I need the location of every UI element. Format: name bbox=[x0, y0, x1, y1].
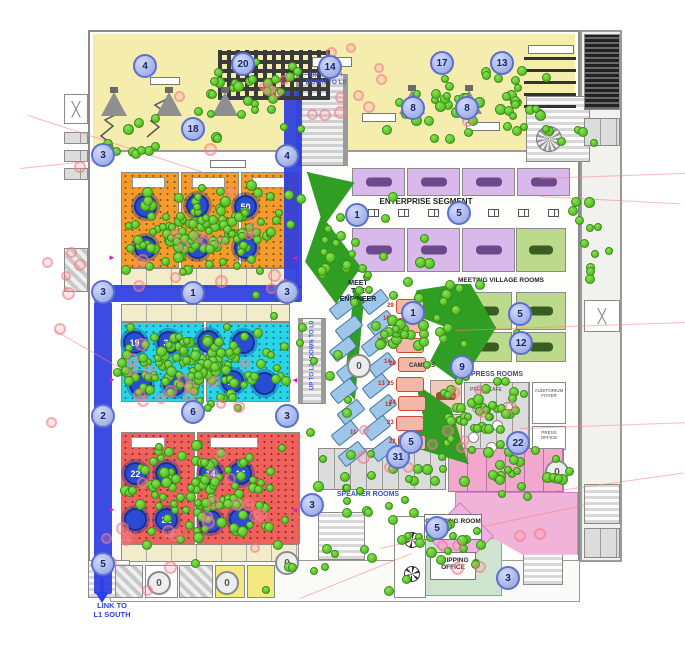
attendee-dot-green bbox=[445, 82, 454, 91]
attendee-dot-green bbox=[511, 100, 520, 109]
attendee-dot-pink bbox=[363, 101, 375, 113]
attendee-dot-green bbox=[270, 312, 278, 320]
cone-structure-cap bbox=[110, 87, 118, 93]
attendee-dot-green bbox=[182, 506, 190, 514]
numbered-desk-pod bbox=[396, 416, 424, 431]
attendee-dot-green bbox=[271, 374, 281, 384]
attendee-dot-green bbox=[336, 213, 345, 222]
cone-structure-cap bbox=[465, 85, 473, 91]
attendee-dot-green bbox=[150, 333, 159, 342]
attendee-dot-green bbox=[313, 481, 324, 492]
attendee-dot-green bbox=[438, 453, 446, 461]
attendee-dot-pink bbox=[204, 143, 217, 156]
attendee-dot-green bbox=[200, 458, 209, 467]
attendee-dot-green bbox=[233, 81, 244, 92]
attendee-dot-pink bbox=[207, 468, 218, 479]
attendee-dot-green bbox=[400, 330, 409, 339]
attendee-dot-green bbox=[198, 184, 206, 192]
attendee-dot-green bbox=[248, 75, 257, 84]
small-label-box bbox=[528, 45, 574, 54]
attendee-dot-green bbox=[281, 376, 291, 386]
attendee-dot-pink bbox=[126, 364, 138, 376]
attendee-dot-green bbox=[351, 238, 360, 247]
attendee-dot-green bbox=[367, 471, 376, 480]
attendee-dot-green bbox=[208, 90, 217, 99]
attendee-dot-green bbox=[310, 357, 318, 365]
room-purple bbox=[352, 168, 405, 196]
attendee-dot-green bbox=[296, 339, 304, 347]
waypoint-marker[interactable]: 4 bbox=[275, 144, 299, 168]
attendee-dot-green bbox=[367, 553, 377, 563]
attendee-dot-green bbox=[554, 474, 563, 483]
attendee-dot-green bbox=[342, 408, 352, 418]
attendee-dot-green bbox=[419, 337, 429, 347]
attendee-dot-green bbox=[511, 76, 520, 85]
desk-number: 13 bbox=[378, 381, 385, 387]
attendee-dot-green bbox=[288, 563, 297, 572]
attendee-dot-green bbox=[445, 280, 455, 290]
attendee-dot-pink bbox=[240, 359, 250, 369]
attendee-dot-green bbox=[422, 464, 433, 475]
attendee-dot-green bbox=[346, 450, 356, 460]
attendee-dot-green bbox=[159, 223, 167, 231]
attendee-dot-green bbox=[424, 116, 434, 126]
attendee-dot-pink bbox=[177, 239, 189, 251]
attendee-dot-green bbox=[389, 291, 398, 300]
attendee-dot-pink bbox=[225, 473, 236, 484]
entrance-arrow-icon: ► bbox=[108, 506, 116, 514]
attendee-dot-green bbox=[229, 341, 238, 350]
attendee-dot-green bbox=[236, 471, 246, 481]
attendee-dot-green bbox=[360, 545, 369, 554]
attendee-dot-green bbox=[319, 455, 327, 463]
zero-marker[interactable]: 0 bbox=[347, 354, 371, 378]
attendee-dot-pink bbox=[477, 408, 487, 418]
attendee-dot-green bbox=[433, 314, 441, 322]
attendee-dot-pink bbox=[357, 451, 370, 464]
attendee-dot-green bbox=[517, 482, 526, 491]
waypoint-marker[interactable]: 5 bbox=[508, 302, 532, 326]
attendee-dot-green bbox=[356, 487, 364, 495]
attendee-dot-green bbox=[381, 214, 390, 223]
attendee-dot-green bbox=[183, 337, 191, 345]
attendee-dot-green bbox=[191, 559, 200, 568]
zero-marker[interactable]: 0 bbox=[215, 571, 239, 595]
waypoint-marker[interactable]: 18 bbox=[181, 117, 205, 141]
attendee-dot-pink bbox=[505, 401, 517, 413]
attendee-dot-pink bbox=[353, 90, 364, 101]
attendee-dot-green bbox=[216, 517, 227, 528]
attendee-dot-pink bbox=[271, 87, 282, 98]
attendee-dot-pink bbox=[474, 561, 486, 573]
attendee-dot-green bbox=[240, 332, 249, 341]
attendee-dot-pink bbox=[374, 63, 384, 73]
attendee-dot-green bbox=[237, 110, 246, 119]
waypoint-marker[interactable]: 5 bbox=[91, 552, 115, 576]
attendee-dot-green bbox=[155, 502, 163, 510]
attendee-dot-green bbox=[496, 440, 505, 449]
attendee-dot-green bbox=[147, 527, 156, 536]
attendee-dot-green bbox=[246, 180, 257, 191]
meeting-village-label: MEETING VILLAGE ROOMS bbox=[458, 277, 544, 284]
waypoint-marker[interactable]: 6 bbox=[181, 400, 205, 424]
attendee-dot-green bbox=[430, 476, 440, 486]
attendee-dot-green bbox=[532, 105, 540, 113]
waypoint-marker[interactable]: 8 bbox=[455, 96, 479, 120]
attendee-dot-green bbox=[214, 68, 223, 77]
attendee-dot-green bbox=[194, 371, 203, 380]
attendee-dot-pink bbox=[335, 92, 346, 103]
attendee-dot-green bbox=[177, 451, 187, 461]
attendee-dot-green bbox=[254, 485, 263, 494]
small-label-box bbox=[150, 77, 180, 85]
attendee-dot-pink bbox=[534, 528, 546, 540]
attendee-dot-green bbox=[513, 467, 521, 475]
attendee-dot-pink bbox=[231, 498, 244, 511]
entrance-arrow-icon: ► bbox=[108, 254, 116, 262]
attendee-dot-green bbox=[151, 479, 161, 489]
attendee-dot-green bbox=[172, 353, 181, 362]
attendee-dot-green bbox=[348, 250, 356, 258]
attendee-dot-pink bbox=[61, 271, 71, 281]
attendee-dot-green bbox=[247, 255, 256, 264]
attendee-dot-green bbox=[460, 340, 468, 348]
waypoint-marker[interactable]: 22 bbox=[506, 431, 530, 455]
attendee-dot-pink bbox=[164, 385, 177, 398]
attendee-dot-green bbox=[227, 217, 237, 227]
attendee-dot-green bbox=[229, 523, 239, 533]
attendee-dot-green bbox=[210, 77, 219, 86]
attendee-dot-green bbox=[266, 484, 274, 492]
attendee-dot-green bbox=[380, 330, 389, 339]
attendee-dot-green bbox=[385, 502, 393, 510]
attendee-dot-green bbox=[494, 74, 503, 83]
attendee-dot-green bbox=[321, 563, 329, 571]
entrance-arrow-icon: ► bbox=[108, 376, 116, 384]
attendee-dot-green bbox=[298, 323, 307, 332]
attendee-dot-green bbox=[266, 227, 276, 237]
attendee-dot-green bbox=[219, 258, 227, 266]
attendee-dot-green bbox=[188, 219, 198, 229]
attendee-dot-green bbox=[210, 362, 220, 372]
attendee-dot-green bbox=[220, 196, 231, 207]
attendee-dot-green bbox=[163, 514, 172, 523]
waypoint-marker[interactable]: 3 bbox=[275, 404, 299, 428]
attendee-dot-green bbox=[364, 508, 373, 517]
attendee-dot-pink bbox=[62, 287, 75, 300]
attendee-dot-green bbox=[517, 66, 527, 76]
attendee-dot-pink bbox=[174, 91, 185, 102]
attendee-dot-pink bbox=[474, 385, 484, 395]
waypoint-marker[interactable]: 3 bbox=[91, 143, 115, 167]
attendee-dot-green bbox=[552, 455, 560, 463]
room-xroom: ╳ bbox=[64, 94, 88, 124]
room-purple bbox=[407, 168, 460, 196]
attendee-dot-green bbox=[358, 264, 367, 273]
attendee-dot-green bbox=[502, 92, 511, 101]
waypoint-marker[interactable]: 2 bbox=[91, 404, 115, 428]
waypoint-marker[interactable]: 1 bbox=[401, 301, 425, 325]
attendee-dot-green bbox=[205, 260, 214, 269]
attendee-dot-green bbox=[324, 225, 332, 233]
attendee-dot-green bbox=[191, 440, 202, 451]
entrance-arrow-icon: ► bbox=[291, 376, 299, 384]
room-rack bbox=[584, 34, 620, 110]
attendee-dot-pink bbox=[208, 376, 220, 388]
waypoint-marker[interactable]: 5 bbox=[399, 430, 423, 454]
attendee-dot-green bbox=[495, 475, 505, 485]
entrance-arrow-icon: ► bbox=[291, 506, 299, 514]
room-beige bbox=[121, 304, 290, 322]
attendee-dot-green bbox=[146, 243, 156, 253]
attendee-dot-green bbox=[194, 499, 202, 507]
attendee-dot-green bbox=[194, 193, 202, 201]
desk-number: 22 bbox=[389, 439, 396, 445]
attendee-dot-pink bbox=[427, 439, 438, 450]
attendee-dot-green bbox=[297, 125, 305, 133]
waypoint-marker[interactable]: 1 bbox=[181, 281, 205, 305]
link-l1-south-label: LINK TO L1 SOUTH bbox=[80, 602, 144, 619]
attendee-dot-green bbox=[162, 213, 170, 221]
attendee-dot-green bbox=[484, 424, 494, 434]
auditorium-foyer-label: AUDITORIUM FOYER bbox=[533, 388, 565, 398]
attendee-dot-green bbox=[280, 123, 288, 131]
attendee-dot-pink bbox=[259, 82, 269, 92]
attendee-dot-pink bbox=[359, 425, 369, 435]
room-xroom: ╳ bbox=[584, 300, 620, 332]
attendee-dot-pink bbox=[133, 280, 145, 292]
attendee-dot-green bbox=[149, 228, 157, 236]
waypoint-marker[interactable]: 13 bbox=[490, 51, 514, 75]
room-hatch bbox=[115, 565, 143, 598]
attendee-dot-green bbox=[126, 323, 135, 332]
attendee-dot-green bbox=[207, 110, 215, 118]
attendee-dot-green bbox=[344, 396, 352, 404]
attendee-dot-green bbox=[355, 286, 364, 295]
attendee-dot-green bbox=[350, 298, 359, 307]
small-label-box bbox=[362, 113, 396, 122]
attendee-dot-green bbox=[281, 516, 289, 524]
attendee-dot-green bbox=[250, 372, 259, 381]
attendee-dot-pink bbox=[215, 275, 228, 288]
attendee-dot-green bbox=[520, 123, 528, 131]
attendee-dot-green bbox=[340, 472, 350, 482]
attendee-dot-green bbox=[202, 214, 210, 222]
demo-desk-pair bbox=[488, 209, 499, 217]
room-purple bbox=[462, 228, 515, 272]
attendee-dot-green bbox=[273, 364, 281, 372]
attendee-dot-pink bbox=[307, 109, 318, 120]
attendee-dot-green bbox=[449, 532, 457, 540]
attendee-dot-green bbox=[237, 248, 245, 256]
attendee-dot-green bbox=[275, 209, 283, 217]
numbered-desk-pod bbox=[398, 396, 426, 411]
attendee-dot-green bbox=[214, 337, 224, 347]
attendee-dot-green bbox=[568, 206, 578, 216]
waypoint-marker[interactable]: 3 bbox=[300, 493, 324, 517]
room-yellowroom bbox=[247, 565, 275, 598]
attendee-dot-green bbox=[578, 127, 588, 137]
entrance-arrow-icon: ► bbox=[291, 254, 299, 262]
attendee-dot-pink bbox=[74, 161, 86, 173]
attendee-dot-green bbox=[575, 216, 584, 225]
walkway-path bbox=[94, 302, 112, 594]
waypoint-marker[interactable]: 5 bbox=[425, 516, 449, 540]
attendee-dot-green bbox=[409, 508, 419, 518]
attendee-dot-green bbox=[388, 192, 398, 202]
attendee-dot-green bbox=[586, 224, 594, 232]
waypoint-marker[interactable]: 14 bbox=[318, 55, 342, 79]
cone-structure-cap bbox=[221, 87, 229, 93]
attendee-dot-pink bbox=[334, 106, 347, 119]
attendee-dot-pink bbox=[225, 186, 236, 197]
attendee-dot-green bbox=[176, 212, 185, 221]
attendee-dot-pink bbox=[442, 425, 454, 437]
attendee-dot-green bbox=[165, 341, 173, 349]
attendee-dot-pink bbox=[215, 449, 226, 460]
room-green bbox=[516, 228, 566, 272]
attendee-dot-green bbox=[239, 458, 248, 467]
room-stairs bbox=[584, 484, 620, 524]
attendee-dot-green bbox=[233, 262, 241, 270]
attendee-dot-green bbox=[135, 499, 146, 510]
link-south-arrow-icon bbox=[94, 578, 110, 604]
waypoint-marker[interactable]: 3 bbox=[275, 280, 299, 304]
attendee-dot-green bbox=[384, 586, 394, 596]
attendee-dot-pink bbox=[319, 109, 331, 121]
attendee-dot-green bbox=[266, 467, 275, 476]
attendee-dot-green bbox=[565, 467, 574, 476]
attendee-dot-green bbox=[147, 212, 156, 221]
attendee-dot-pink bbox=[250, 543, 260, 553]
attendee-dot-pink bbox=[268, 269, 281, 282]
attendee-dot-green bbox=[280, 342, 289, 351]
attendee-dot-green bbox=[272, 216, 281, 225]
attendee-dot-green bbox=[193, 203, 201, 211]
waypoint-marker[interactable]: 12 bbox=[509, 331, 533, 355]
attendee-dot-green bbox=[216, 206, 226, 216]
attendee-dot-green bbox=[190, 350, 201, 361]
attendee-dot-pink bbox=[164, 561, 177, 574]
attendee-dot-green bbox=[229, 378, 239, 388]
waypoint-marker[interactable]: 4 bbox=[133, 54, 157, 78]
demo-desk-pair bbox=[398, 209, 409, 217]
waypoint-marker[interactable]: 5 bbox=[447, 201, 471, 225]
waypoint-marker[interactable]: 20 bbox=[231, 52, 255, 76]
attendee-dot-green bbox=[151, 491, 159, 499]
attendee-dot-green bbox=[149, 457, 158, 466]
attendee-dot-green bbox=[586, 267, 595, 276]
attendee-dot-pink bbox=[121, 536, 131, 546]
attendee-dot-green bbox=[436, 555, 446, 565]
attendee-dot-green bbox=[262, 586, 270, 594]
campus-label: CAMPUS bbox=[405, 363, 439, 370]
attendee-dot-pink bbox=[54, 323, 66, 335]
attendee-dot-pink bbox=[116, 522, 129, 535]
attendee-dot-green bbox=[175, 333, 183, 341]
attendee-dot-green bbox=[143, 196, 153, 206]
attendee-dot-green bbox=[496, 425, 505, 434]
attendee-dot-green bbox=[343, 484, 351, 492]
attendee-dot-green bbox=[317, 266, 327, 276]
attendee-dot-green bbox=[133, 235, 143, 245]
attendee-dot-green bbox=[605, 247, 613, 255]
attendee-dot-green bbox=[542, 73, 551, 82]
attendee-dot-green bbox=[331, 550, 339, 558]
demo-desk-pair bbox=[548, 209, 559, 217]
press-office-label: PRESS OFFICE bbox=[533, 430, 565, 440]
attendee-dot-green bbox=[473, 527, 481, 535]
attendee-dot-green bbox=[443, 92, 451, 100]
waypoint-marker[interactable]: 1 bbox=[345, 203, 369, 227]
attendee-dot-green bbox=[256, 359, 266, 369]
attendee-dot-pink bbox=[143, 365, 155, 377]
attendee-dot-pink bbox=[170, 272, 181, 283]
attendee-dot-green bbox=[121, 265, 131, 275]
waypoint-marker[interactable]: 3 bbox=[496, 566, 520, 590]
attendee-dot-pink bbox=[207, 496, 220, 509]
speaker-rooms-label: SPEAKER ROOMS bbox=[330, 491, 406, 499]
attendee-dot-green bbox=[128, 486, 137, 495]
attendee-dot-green bbox=[498, 490, 506, 498]
attendee-dot-pink bbox=[46, 417, 57, 428]
waypoint-marker[interactable]: 9 bbox=[450, 355, 474, 379]
room-purple bbox=[517, 168, 570, 196]
demo-desk-pair bbox=[518, 209, 529, 217]
attendee-dot-pink bbox=[192, 231, 204, 243]
attendee-dot-pink bbox=[279, 75, 289, 85]
attendee-dot-pink bbox=[451, 562, 464, 575]
attendee-dot-green bbox=[435, 327, 445, 337]
attendee-dot-green bbox=[509, 112, 517, 120]
attendee-dot-green bbox=[405, 475, 413, 483]
attendee-dot-green bbox=[204, 404, 212, 412]
attendee-dot-pink bbox=[136, 254, 149, 267]
attendee-dot-green bbox=[155, 443, 163, 451]
waypoint-marker[interactable]: 8 bbox=[401, 96, 425, 120]
attendee-dot-green bbox=[459, 476, 470, 487]
attendee-dot-pink bbox=[346, 43, 356, 53]
attendee-dot-green bbox=[580, 239, 589, 248]
attendee-dot-green bbox=[401, 496, 409, 504]
waypoint-marker[interactable]: 3 bbox=[91, 280, 115, 304]
attendee-dot-pink bbox=[216, 399, 226, 409]
attendee-dot-green bbox=[523, 492, 532, 501]
attendee-dot-green bbox=[216, 187, 225, 196]
attendee-dot-green bbox=[238, 510, 248, 520]
attendee-dot-green bbox=[441, 75, 449, 83]
numbered-desk-pod bbox=[396, 377, 424, 392]
attendee-dot-green bbox=[473, 424, 482, 433]
attendee-dot-pink bbox=[42, 257, 53, 268]
attendee-dot-green bbox=[306, 428, 315, 437]
attendee-dot-green bbox=[137, 146, 146, 155]
attendee-dot-green bbox=[557, 137, 566, 146]
attendee-dot-green bbox=[584, 197, 595, 208]
attendee-dot-pink bbox=[233, 401, 245, 413]
attendee-dot-green bbox=[194, 107, 203, 116]
attendee-dot-green bbox=[194, 363, 203, 372]
attendee-dot-green bbox=[464, 128, 473, 137]
attendee-dot-green bbox=[174, 193, 184, 203]
attendee-dot-green bbox=[187, 484, 195, 492]
waypoint-marker[interactable]: 17 bbox=[430, 51, 454, 75]
attendee-dot-green bbox=[333, 350, 343, 360]
demo-desk-pair bbox=[428, 209, 439, 217]
attendee-dot-green bbox=[138, 353, 148, 363]
desk-number: 11 bbox=[350, 430, 356, 436]
attendee-dot-green bbox=[388, 515, 398, 525]
